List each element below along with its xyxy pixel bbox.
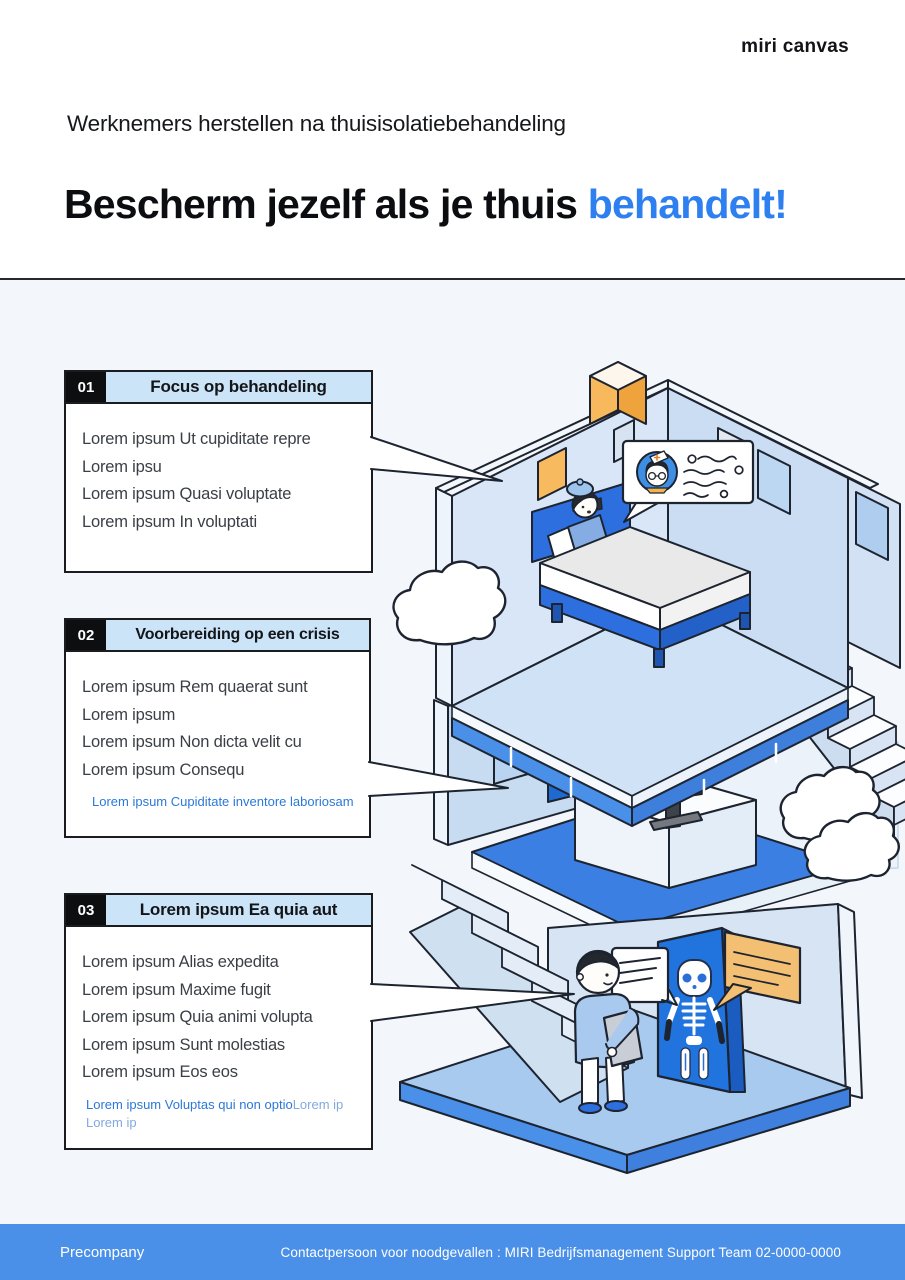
body-line: Lorem ipsum Consequ <box>82 757 355 785</box>
footer-contact: Contactpersoon voor noodgevallen : MIRI … <box>281 1245 841 1260</box>
callout-03-body: Lorem ipsum Alias expedita Lorem ipsum M… <box>64 927 373 1150</box>
body-line: Lorem ipsum In voluptati <box>82 509 357 537</box>
body-line: Lorem ipsum <box>82 702 355 730</box>
callout-02-body: Lorem ipsum Rem quaerat sunt Lorem ipsum… <box>64 652 371 838</box>
body-line: Lorem ipsum Non dicta velit cu <box>82 729 355 757</box>
callout-01-header: 01 Focus op behandeling <box>64 370 373 404</box>
title-accent: behandelt! <box>588 181 787 227</box>
body-line: Lorem ipsum Alias expedita <box>82 949 357 977</box>
callout-02: 02 Voorbereiding op een crisis Lorem ips… <box>64 618 371 838</box>
poster-kicker: Werknemers herstellen na thuisisolatiebe… <box>67 111 566 137</box>
body-line: Lorem ipsum Eos eos <box>82 1059 357 1087</box>
body-link: Lorem ipsum Cupiditate inventore laborio… <box>82 793 355 811</box>
body-line: Lorem ipsum Quia animi volupta <box>82 1004 357 1032</box>
header-divider <box>0 278 905 280</box>
title-main: Bescherm jezelf als je thuis <box>64 181 588 227</box>
body-line: Lorem ipsu <box>82 454 357 482</box>
callout-03-number: 03 <box>66 895 106 925</box>
body-line: Lorem ipsum Ut cupiditate repre <box>82 426 357 454</box>
link-light-2: Lorem ip <box>86 1115 137 1130</box>
callout-03-title: Lorem ipsum Ea quia aut <box>106 895 371 925</box>
body-link: Lorem ipsum Voluptas qui non optioLorem … <box>82 1096 357 1132</box>
link-dark: Lorem ipsum Voluptas qui non optio <box>86 1097 293 1112</box>
callout-01-title: Focus op behandeling <box>106 372 371 402</box>
callout-01-body: Lorem ipsum Ut cupiditate repre Lorem ip… <box>64 404 373 573</box>
callout-02-header: 02 Voorbereiding op een crisis <box>64 618 371 652</box>
callout-03: 03 Lorem ipsum Ea quia aut Lorem ipsum A… <box>64 893 373 1150</box>
callout-02-number: 02 <box>66 620 106 650</box>
miricanvas-logo: miri canvas <box>741 36 849 58</box>
link-light: Lorem ip <box>293 1097 344 1112</box>
callout-01: 01 Focus op behandeling Lorem ipsum Ut c… <box>64 370 373 573</box>
poster-title: Bescherm jezelf als je thuis behandelt! <box>64 181 787 228</box>
body-line: Lorem ipsum Quasi voluptate <box>82 481 357 509</box>
body-line: Lorem ipsum Rem quaerat sunt <box>82 674 355 702</box>
footer-bar: Precompany Contactpersoon voor noodgeval… <box>0 1224 905 1280</box>
callout-01-number: 01 <box>66 372 106 402</box>
callout-02-title: Voorbereiding op een crisis <box>106 620 369 650</box>
poster-page: miri canvas Werknemers herstellen na thu… <box>0 0 905 1280</box>
callout-03-header: 03 Lorem ipsum Ea quia aut <box>64 893 373 927</box>
footer-company: Precompany <box>60 1244 144 1261</box>
body-line: Lorem ipsum Maxime fugit <box>82 977 357 1005</box>
body-line: Lorem ipsum Sunt molestias <box>82 1032 357 1060</box>
